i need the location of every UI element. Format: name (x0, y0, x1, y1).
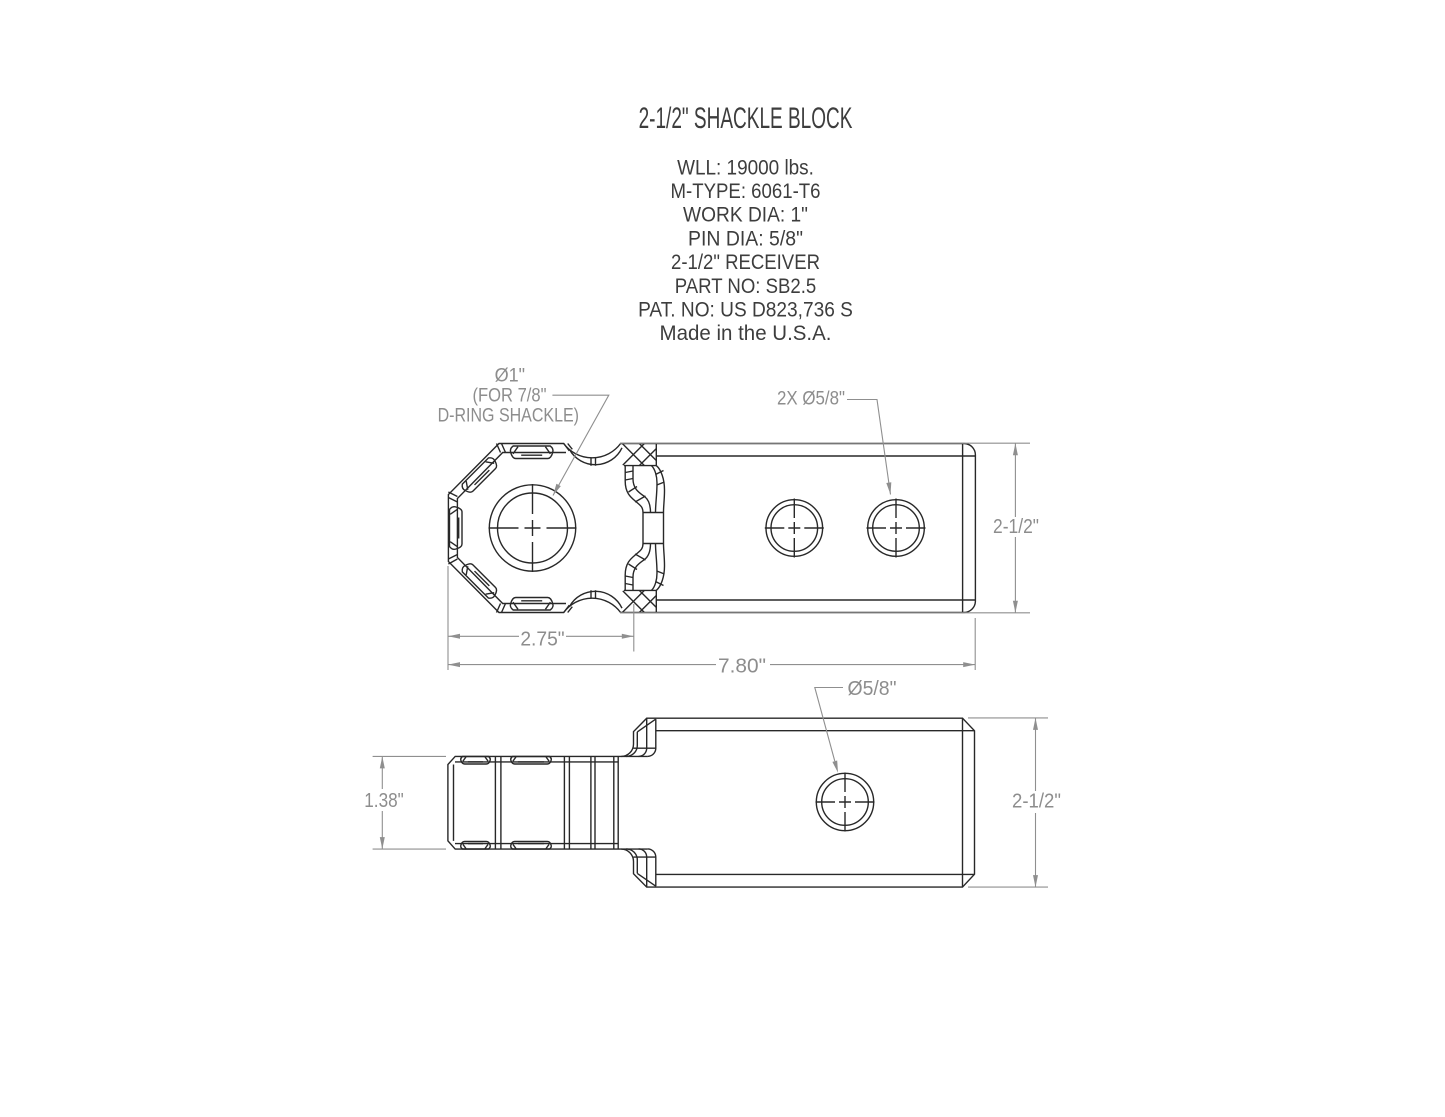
svg-text:M-TYPE: 6061-T6: M-TYPE: 6061-T6 (670, 180, 820, 204)
svg-text:2-1/2": 2-1/2" (1012, 790, 1061, 813)
svg-text:2-1/2" RECEIVER: 2-1/2" RECEIVER (671, 251, 820, 275)
svg-text:WORK DIA: 1": WORK DIA: 1" (683, 204, 808, 227)
svg-text:Ø1": Ø1" (495, 364, 525, 386)
svg-text:(FOR 7/8": (FOR 7/8" (473, 384, 547, 405)
svg-text:2.75": 2.75" (520, 628, 564, 651)
svg-text:2-1/2" SHACKLE BLOCK: 2-1/2" SHACKLE BLOCK (639, 102, 853, 135)
svg-text:D-RING SHACKLE): D-RING SHACKLE) (438, 404, 579, 426)
svg-text:Ø5/8": Ø5/8" (847, 678, 896, 701)
svg-text:WLL: 19000 lbs.: WLL: 19000 lbs. (677, 156, 814, 179)
svg-text:2-1/2": 2-1/2" (993, 516, 1039, 539)
svg-text:PAT. NO: US D823,736 S: PAT. NO: US D823,736 S (638, 299, 853, 322)
svg-text:PIN DIA: 5/8": PIN DIA: 5/8" (688, 227, 803, 251)
svg-text:PART NO: SB2.5: PART NO: SB2.5 (675, 275, 817, 299)
svg-text:7.80": 7.80" (718, 655, 766, 678)
svg-text:2X Ø5/8": 2X Ø5/8" (777, 388, 845, 409)
svg-text:Made in the U.S.A.: Made in the U.S.A. (660, 322, 832, 346)
svg-text:1.38": 1.38" (364, 790, 403, 813)
